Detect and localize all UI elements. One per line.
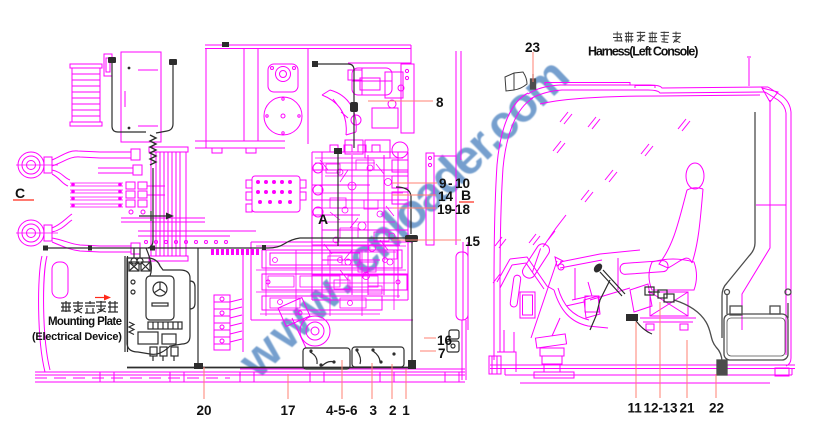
- svg-text:3: 3: [370, 403, 378, 418]
- svg-text:4-5-6: 4-5-6: [326, 403, 358, 418]
- svg-text:20: 20: [197, 403, 212, 418]
- svg-text:17: 17: [281, 403, 296, 418]
- svg-text:21: 21: [680, 401, 696, 416]
- svg-text:23: 23: [525, 40, 541, 55]
- svg-text:15: 15: [465, 234, 481, 249]
- svg-text:C: C: [15, 185, 25, 201]
- svg-text:2: 2: [389, 403, 397, 418]
- svg-text:12: 12: [644, 401, 659, 416]
- svg-text:(Electrical Device): (Electrical Device): [32, 331, 122, 343]
- svg-text:18: 18: [455, 202, 471, 217]
- svg-text:7: 7: [438, 346, 446, 361]
- svg-text:Harness(Left Console): Harness(Left Console): [588, 45, 698, 59]
- svg-text:Mounting Plate: Mounting Plate: [48, 316, 122, 328]
- svg-text:11: 11: [628, 401, 643, 416]
- svg-text:8: 8: [436, 95, 444, 110]
- svg-text:1: 1: [402, 403, 410, 418]
- svg-text:A: A: [318, 211, 328, 227]
- svg-text:22: 22: [709, 401, 724, 416]
- svg-text:13: 13: [663, 401, 679, 416]
- svg-text:10: 10: [455, 176, 470, 191]
- svg-text:19: 19: [437, 202, 452, 217]
